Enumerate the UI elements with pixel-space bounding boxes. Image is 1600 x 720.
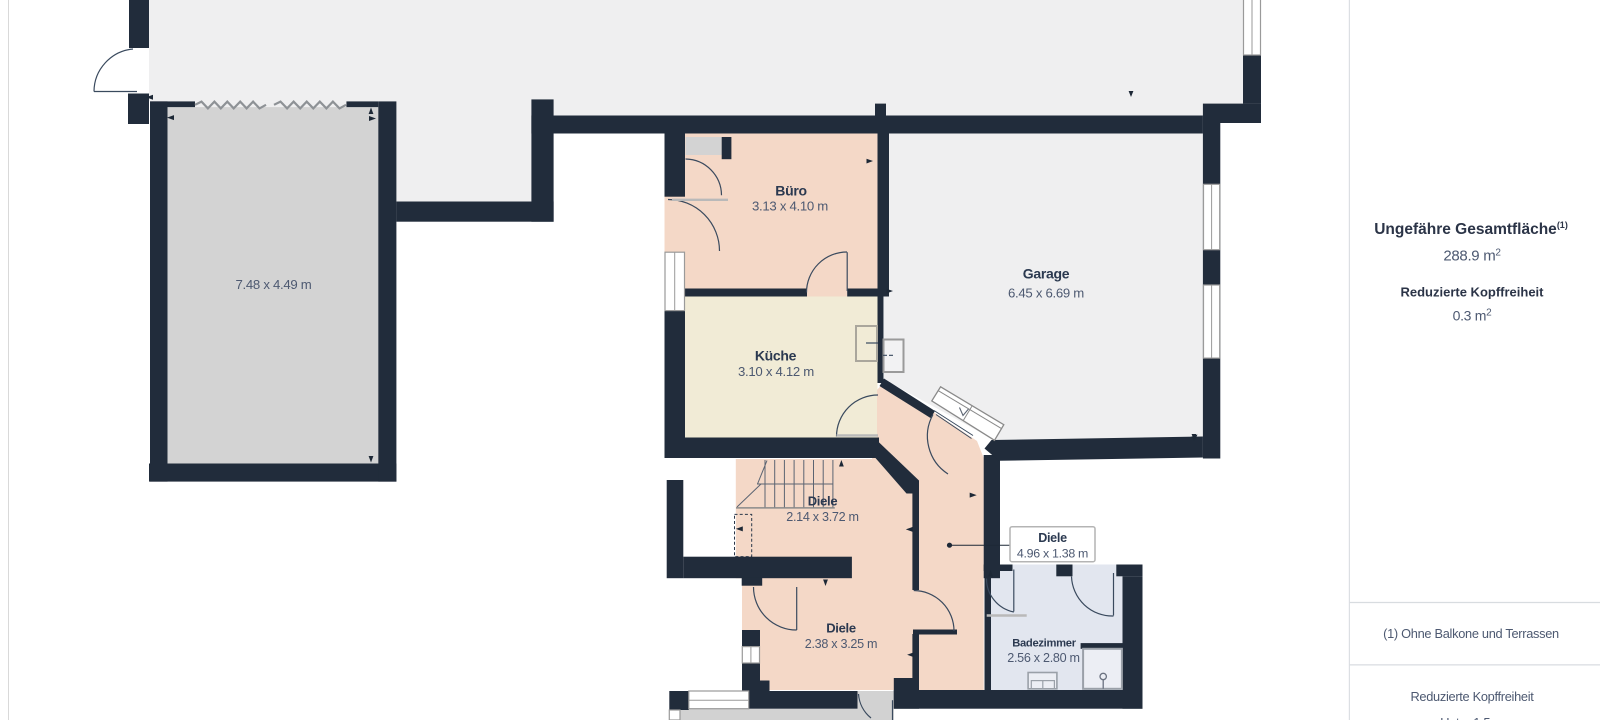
svg-text:(1) Ohne Balkone und Terrassen: (1) Ohne Balkone und Terrassen [1383,626,1559,641]
svg-text:6.45 x 6.69 m: 6.45 x 6.69 m [1008,286,1084,301]
svg-text:Garage: Garage [1023,266,1070,282]
svg-text:2.56 x 2.80 m: 2.56 x 2.80 m [1007,651,1079,665]
svg-text:Diele: Diele [808,494,838,509]
svg-text:3.10 x 4.12 m: 3.10 x 4.12 m [738,364,814,379]
svg-text:2.38 x 3.25 m: 2.38 x 3.25 m [805,637,877,651]
svg-text:2.14 x 3.72 m: 2.14 x 3.72 m [786,510,858,524]
svg-text:4.96 x 1.38 m: 4.96 x 1.38 m [1017,547,1088,561]
svg-text:Reduzierte Kopffreiheit: Reduzierte Kopffreiheit [1400,285,1544,300]
svg-text:Reduzierte Kopffreiheit: Reduzierte Kopffreiheit [1410,689,1534,704]
svg-text:288.9 m2: 288.9 m2 [1443,248,1501,265]
svg-text:Unter 1.5 m: Unter 1.5 m [1440,715,1504,720]
svg-text:Ungefähre Gesamtfläche(1): Ungefähre Gesamtfläche(1) [1374,220,1568,238]
svg-text:Diele: Diele [826,621,856,636]
svg-text:Diele: Diele [1038,531,1067,545]
svg-text:Büro: Büro [775,183,806,199]
svg-text:Badezimmer: Badezimmer [1012,638,1076,650]
svg-text:7.48 x 4.49 m: 7.48 x 4.49 m [235,277,311,292]
svg-text:Küche: Küche [755,348,797,364]
svg-text:3.13 x 4.10 m: 3.13 x 4.10 m [752,199,828,214]
